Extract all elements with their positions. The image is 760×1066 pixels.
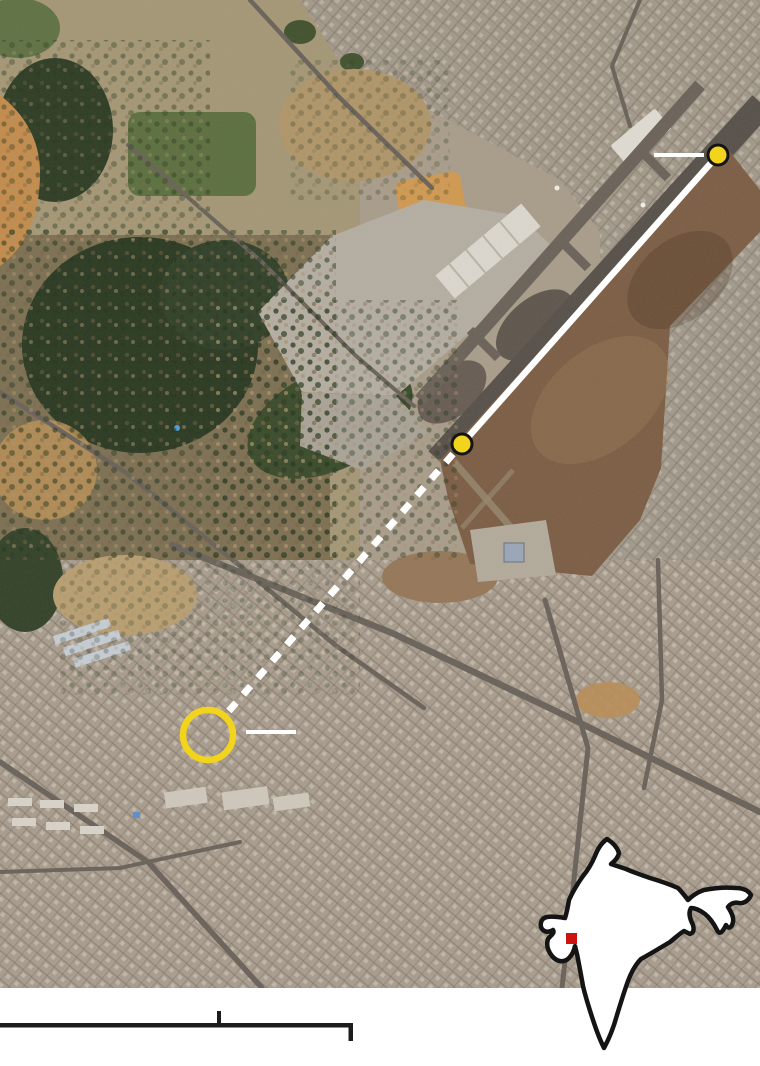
map-graphic	[0, 0, 760, 1066]
scale-bar	[0, 1011, 353, 1041]
location-marker	[566, 933, 577, 944]
scale-bar-mid-tick	[217, 1011, 221, 1024]
scale-bar-line	[0, 1023, 353, 1028]
india-locator-inset	[538, 826, 760, 1066]
scale-bar-end-tick	[349, 1023, 354, 1041]
